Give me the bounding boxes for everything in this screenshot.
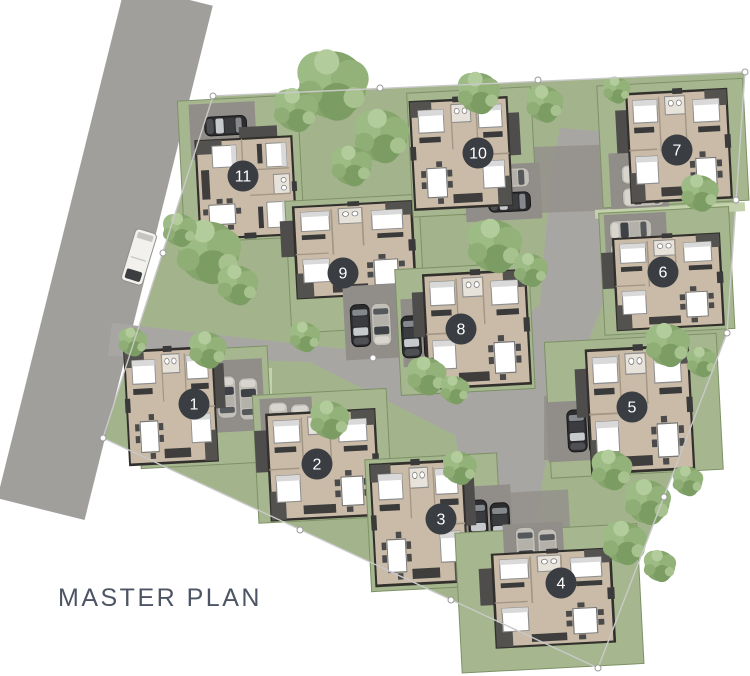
survey-marker-icon xyxy=(535,77,541,83)
survey-marker-icon xyxy=(595,665,601,671)
survey-marker-icon xyxy=(742,69,748,75)
lot-number: 3 xyxy=(437,512,446,529)
survey-marker-icon xyxy=(100,435,106,441)
lot-9-badge: 9 xyxy=(328,258,359,289)
lot-5-badge: 5 xyxy=(617,392,648,423)
plan-title: MASTER PLAN xyxy=(58,584,262,613)
lot-number: 2 xyxy=(313,457,322,474)
lot-number: 8 xyxy=(457,322,466,339)
survey-marker-icon xyxy=(210,93,216,99)
lot-number: 4 xyxy=(557,576,566,593)
lot-number: 11 xyxy=(235,169,252,186)
car-icon xyxy=(350,304,371,347)
lot-number: 5 xyxy=(628,400,637,417)
lot-6-badge: 6 xyxy=(648,257,679,288)
lot-3-badge: 3 xyxy=(426,504,457,535)
survey-marker-icon xyxy=(377,85,383,91)
survey-marker-icon xyxy=(370,355,376,361)
master-plan-graphic: 1 2 3 4 5 6 7 8 xyxy=(0,0,750,676)
lot-number: 7 xyxy=(673,143,682,160)
lot-number: 1 xyxy=(190,397,199,414)
lot-10-badge: 10 xyxy=(463,138,494,169)
lot-7-badge: 7 xyxy=(662,135,693,166)
lot-number: 6 xyxy=(659,265,668,282)
lot-8-badge: 8 xyxy=(446,314,477,345)
lot-1-badge: 1 xyxy=(179,389,210,420)
survey-marker-icon xyxy=(661,494,667,500)
survey-marker-icon xyxy=(733,197,739,203)
lot-number: 9 xyxy=(339,266,348,283)
survey-marker-icon xyxy=(160,250,166,256)
master-plan-canvas: 1 2 3 4 5 6 7 8 xyxy=(0,0,750,676)
lot-11-badge: 11 xyxy=(228,161,259,192)
lot-number: 10 xyxy=(469,146,487,163)
car-icon xyxy=(371,303,392,346)
survey-marker-icon xyxy=(297,527,303,533)
lot-2-badge: 2 xyxy=(302,449,333,480)
lot-4-badge: 4 xyxy=(546,568,577,599)
survey-marker-icon xyxy=(448,597,454,603)
survey-marker-icon xyxy=(724,330,730,336)
house-plan xyxy=(478,545,617,648)
tree-icon xyxy=(644,550,676,582)
